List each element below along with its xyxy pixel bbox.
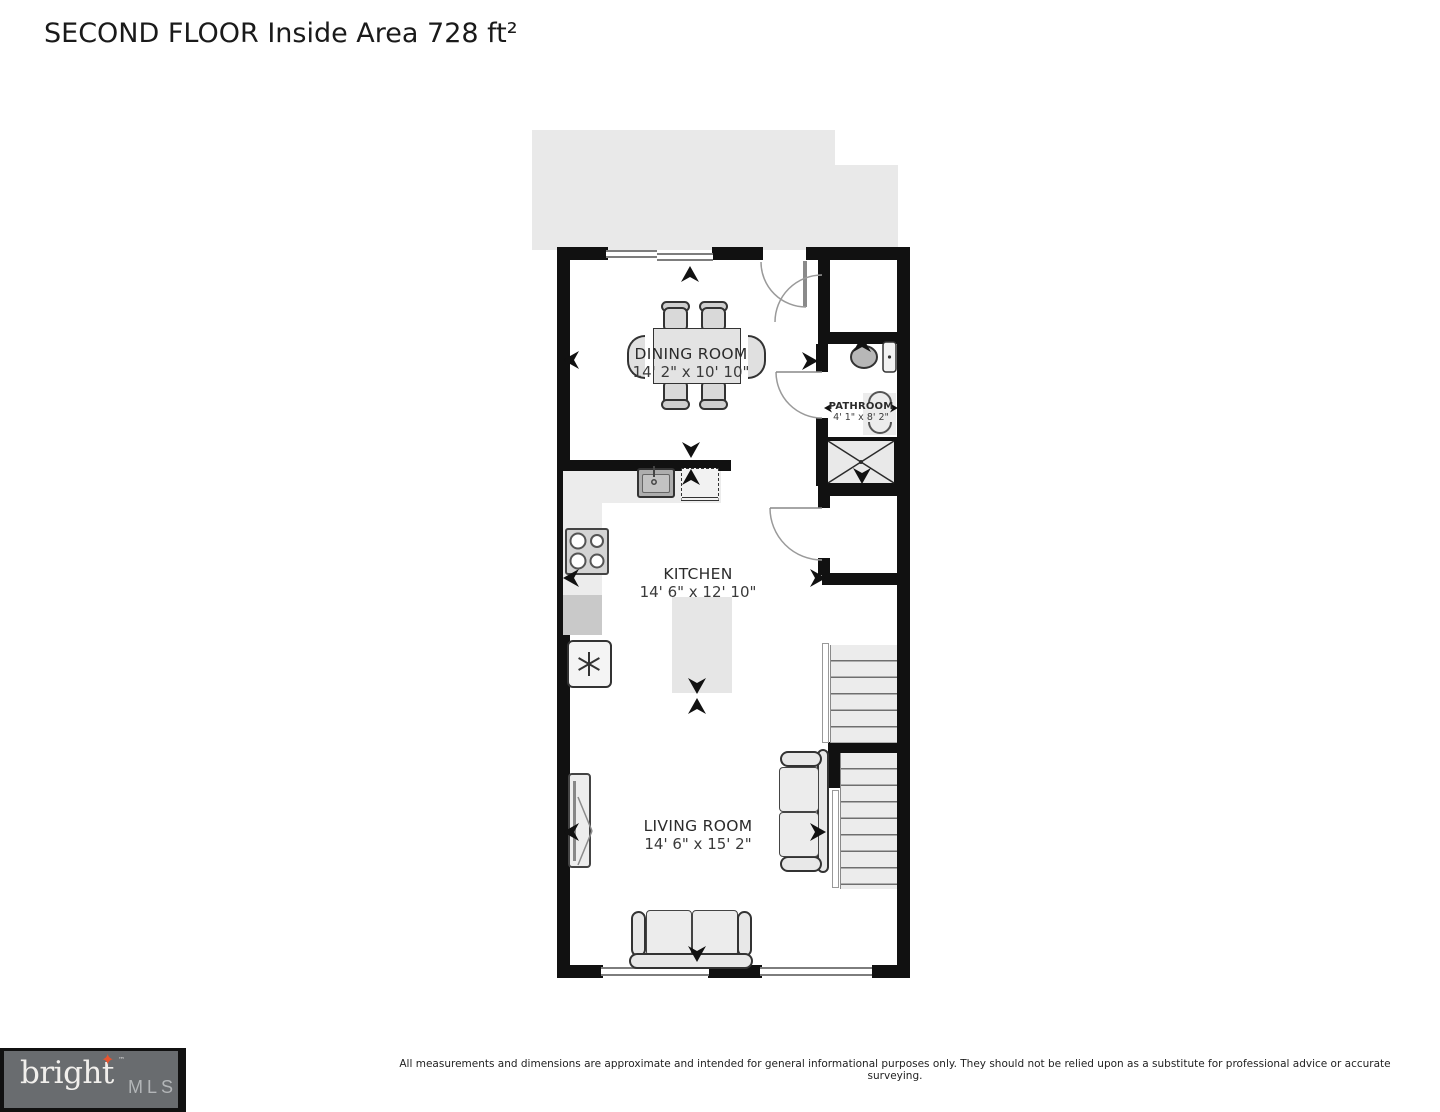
living-room-name: LIVING ROOM [644, 817, 753, 835]
stair-handrail [822, 643, 829, 743]
logo-mls-text: MLS [128, 1077, 177, 1098]
floorplan: DINING ROOM 14' 2" x 10' 10" KITCHEN 14'… [0, 0, 1440, 1050]
kitchen-island [672, 597, 732, 693]
stair-handrail [832, 790, 839, 888]
sofa-cushion [779, 812, 819, 857]
window [606, 250, 657, 258]
dishwasher [681, 468, 719, 501]
door-swing-icon [761, 262, 822, 560]
wall-closet [818, 332, 910, 344]
wall-stairs [828, 742, 908, 753]
wall-bathroom [816, 344, 828, 372]
dining-room-name: DINING ROOM [633, 345, 750, 363]
kitchen-sink-basin [642, 474, 670, 493]
dining-chair [661, 399, 690, 410]
loveseat-cushion [692, 910, 738, 956]
sofa-arm [780, 751, 822, 767]
tv-screen [573, 781, 576, 861]
bathroom-dims: 4' 1" x 8' 2" [829, 412, 894, 423]
wall-right [897, 247, 910, 978]
stairs-lower-flight [840, 753, 897, 889]
sofa-back [817, 749, 829, 873]
wall-top [806, 247, 910, 260]
dining-chair [699, 399, 728, 410]
kitchen-name: KITCHEN [640, 565, 757, 583]
logo-brand-text: bright [20, 1055, 114, 1091]
loveseat-cushion [646, 910, 692, 956]
loveseat-back [629, 953, 753, 969]
wall-bottom [872, 965, 910, 978]
room-label-living: LIVING ROOM 14' 6" x 15' 2" [644, 817, 753, 853]
door-leaf [803, 261, 807, 307]
living-room-dims: 14' 6" x 15' 2" [644, 835, 753, 853]
stove [565, 528, 609, 575]
brightmls-logo: bright ✦ ™ MLS [0, 1048, 186, 1112]
dining-chair-end [748, 335, 766, 379]
wall-stairs [828, 742, 840, 788]
wall-top [712, 247, 763, 260]
sofa-cushion [779, 767, 819, 812]
wall-closet [818, 260, 830, 332]
wall-bottom [557, 965, 603, 978]
wall-top [557, 247, 608, 260]
toilet-icon [851, 342, 896, 372]
loveseat-arm [737, 911, 752, 957]
sofa-arm [780, 856, 822, 872]
logo-star-icon: ✦ [101, 1050, 114, 1069]
dining-room-dims: 14' 2" x 10' 10" [633, 363, 750, 381]
room-label-dining: DINING ROOM 14' 2" x 10' 10" [633, 345, 750, 381]
refrigerator [567, 640, 612, 688]
adjacent-structure [833, 165, 898, 250]
brightmls-logo-inner: bright ✦ ™ MLS [4, 1051, 178, 1108]
bathroom-name: PATHROOM [829, 401, 894, 412]
loveseat-arm [631, 911, 646, 957]
floorplan-page: { "title": "SECOND FLOOR Inside Area 728… [0, 0, 1440, 1112]
window [657, 253, 713, 261]
room-label-kitchen: KITCHEN 14' 6" x 12' 10" [640, 565, 757, 601]
kitchen-counter-dark [563, 595, 602, 635]
stairs-upper-flight [830, 645, 897, 743]
window [760, 967, 872, 976]
disclaimer-text: All measurements and dimensions are appr… [390, 1058, 1400, 1082]
room-label-bathroom: PATHROOM 4' 1" x 8' 2" [829, 401, 894, 423]
kitchen-dims: 14' 6" x 12' 10" [640, 583, 757, 601]
wall-landing [818, 494, 830, 508]
wall-landing [822, 573, 910, 585]
shower [824, 437, 898, 487]
logo-trademark: ™ [118, 1056, 125, 1064]
wall-shower [818, 486, 910, 496]
tv-console [568, 773, 591, 868]
adjacent-structure [532, 130, 835, 250]
